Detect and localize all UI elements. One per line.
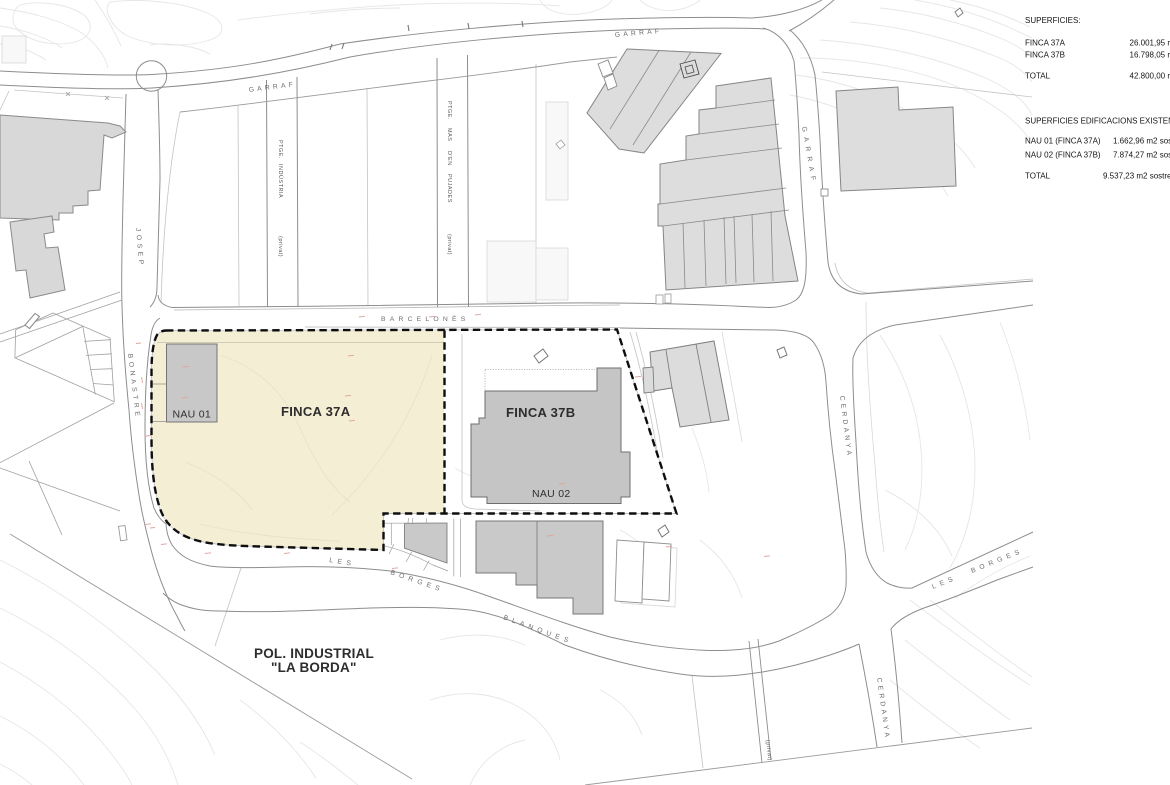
svg-text:FINCA 37B: FINCA 37B [506,405,575,420]
svg-text:(privat): (privat) [446,234,452,255]
svg-text:NAU 01 (FINCA 37A): NAU 01 (FINCA 37A) [1025,137,1101,146]
svg-text:D'EN: D'EN [446,151,452,166]
svg-text:SUPERFICIES EDIFICACIONS EXIST: SUPERFICIES EDIFICACIONS EXISTENTS [1025,117,1170,126]
svg-text:MAS: MAS [446,128,452,141]
svg-text:POL. INDUSTRIAL: POL. INDUSTRIAL [254,646,374,661]
svg-text:TOTAL: TOTAL [1025,72,1051,81]
svg-text:PTGE.: PTGE. [277,140,283,159]
svg-text:42.800,00 m: 42.800,00 m [1130,72,1170,81]
svg-text:SUPERFICIES:: SUPERFICIES: [1025,16,1081,25]
svg-text:7.874,27 m2 sostre: 7.874,27 m2 sostre [1113,151,1170,160]
svg-text:FINCA 37A: FINCA 37A [1025,39,1066,48]
svg-text:NAU 02 (FINCA 37B): NAU 02 (FINCA 37B) [1025,151,1101,160]
svg-text:TOTAL: TOTAL [1025,172,1051,181]
svg-text:NAU 02: NAU 02 [532,488,571,500]
svg-text:(privat): (privat) [277,236,283,257]
svg-text:26.001,95 m: 26.001,95 m [1130,39,1170,48]
svg-text:PUJADES: PUJADES [446,174,452,203]
svg-text:BARCELONÈS: BARCELONÈS [381,314,469,323]
svg-text:PTGE.: PTGE. [446,101,452,120]
svg-text:INDÚSTRIA: INDÚSTRIA [277,164,284,198]
svg-text:16.798,05 m: 16.798,05 m [1130,51,1170,60]
svg-text:"LA BORDA": "LA BORDA" [271,660,357,675]
svg-text:FINCA 37B: FINCA 37B [1025,51,1065,60]
svg-text:9.537,23 m2 sostre: 9.537,23 m2 sostre [1103,172,1170,181]
svg-text:NAU 01: NAU 01 [173,409,212,421]
svg-text:1.662,96 m2 sostre: 1.662,96 m2 sostre [1113,137,1170,146]
svg-text:FINCA 37A: FINCA 37A [281,404,351,419]
